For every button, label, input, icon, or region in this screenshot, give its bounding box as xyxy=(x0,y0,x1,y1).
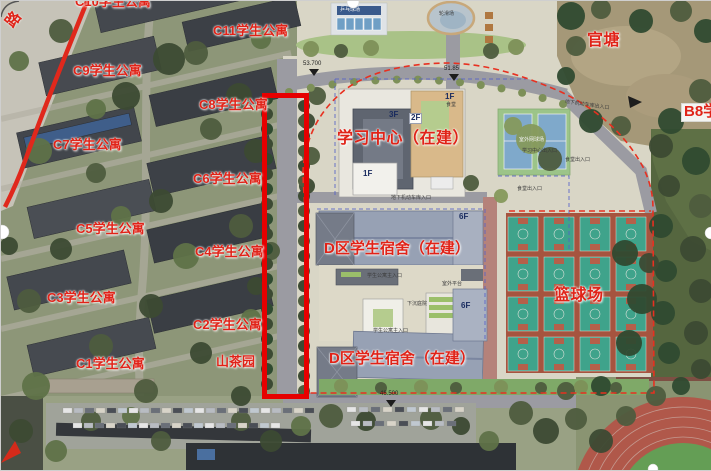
tree xyxy=(153,43,185,75)
tree xyxy=(616,406,636,426)
court-key xyxy=(554,258,564,264)
car xyxy=(260,423,269,428)
tree xyxy=(112,82,140,110)
car xyxy=(128,423,137,428)
tree xyxy=(579,109,603,133)
tree xyxy=(291,416,311,436)
planter-benches xyxy=(485,12,493,43)
car xyxy=(106,423,115,428)
car xyxy=(351,421,360,426)
tree xyxy=(649,134,673,158)
street-tree xyxy=(414,76,422,84)
tree xyxy=(414,380,428,394)
car xyxy=(228,408,237,413)
tree xyxy=(557,67,575,85)
car xyxy=(95,423,104,428)
car xyxy=(305,408,314,413)
car xyxy=(63,408,72,413)
car xyxy=(387,421,396,426)
car xyxy=(118,408,127,413)
tree xyxy=(173,243,199,269)
tree xyxy=(9,419,33,443)
tree xyxy=(50,238,72,260)
tree xyxy=(611,116,631,136)
court-key xyxy=(590,298,600,304)
car xyxy=(216,423,225,428)
car xyxy=(129,408,138,413)
skating-rink xyxy=(428,2,474,34)
car xyxy=(161,423,170,428)
blue-roof-structure xyxy=(197,449,215,460)
tree xyxy=(504,117,522,135)
car xyxy=(239,408,248,413)
tree xyxy=(89,334,113,358)
tree xyxy=(680,236,706,262)
car xyxy=(84,423,93,428)
tree xyxy=(557,2,585,30)
tree xyxy=(616,330,642,356)
car xyxy=(184,408,193,413)
street-tree xyxy=(307,84,315,92)
map-artwork xyxy=(1,1,711,470)
court-key xyxy=(554,364,564,370)
car xyxy=(162,408,171,413)
tree xyxy=(151,431,171,451)
court-key xyxy=(518,258,528,264)
tree xyxy=(149,189,173,213)
tree xyxy=(226,83,252,109)
tree xyxy=(682,147,710,175)
tree xyxy=(538,147,562,171)
tree xyxy=(17,289,41,313)
tree xyxy=(241,309,261,329)
tree xyxy=(566,36,586,56)
car xyxy=(249,423,258,428)
car xyxy=(73,423,82,428)
tree xyxy=(22,372,50,400)
car xyxy=(419,407,428,412)
tree xyxy=(494,189,508,203)
car xyxy=(272,408,281,413)
car xyxy=(383,407,392,412)
car xyxy=(173,408,182,413)
car xyxy=(431,407,440,412)
car xyxy=(411,421,420,426)
street-tree xyxy=(371,76,379,84)
court-key xyxy=(590,244,600,250)
court-key xyxy=(518,244,528,250)
car xyxy=(151,408,160,413)
tree xyxy=(574,380,588,394)
tree xyxy=(334,44,348,58)
campus-site-map: 路 C10学生公寓 C11学生公寓 C9学生公寓 C8学生公寓 C7学生公寓 C… xyxy=(0,0,711,471)
tree xyxy=(319,404,343,428)
street-tree xyxy=(477,81,485,89)
court-key xyxy=(518,284,528,290)
street-tree xyxy=(435,77,443,85)
car xyxy=(347,407,356,412)
tree xyxy=(260,430,282,452)
tree xyxy=(672,377,690,395)
car xyxy=(271,423,280,428)
car xyxy=(261,408,270,413)
car xyxy=(85,408,94,413)
court-key xyxy=(518,218,528,224)
street-tree xyxy=(559,100,567,108)
tree xyxy=(691,359,711,379)
tree xyxy=(646,386,666,406)
car xyxy=(283,408,292,413)
car xyxy=(74,408,83,413)
street-tree xyxy=(393,76,401,84)
car xyxy=(399,421,408,426)
court-key xyxy=(518,298,528,304)
court-key xyxy=(554,244,564,250)
car xyxy=(447,421,456,426)
tree xyxy=(9,51,29,71)
tree xyxy=(508,39,524,55)
car xyxy=(217,408,226,413)
court-key xyxy=(590,258,600,264)
car xyxy=(371,407,380,412)
car xyxy=(140,408,149,413)
tree xyxy=(303,41,319,57)
car xyxy=(172,423,181,428)
tree xyxy=(463,175,479,191)
court-key xyxy=(554,218,564,224)
tree xyxy=(483,43,499,59)
street-tree xyxy=(518,89,526,97)
tree xyxy=(565,408,587,430)
car xyxy=(238,423,247,428)
tree xyxy=(111,206,131,226)
car xyxy=(139,423,148,428)
court-key xyxy=(554,284,564,290)
court-key xyxy=(554,298,564,304)
dark-building-bottom xyxy=(186,443,516,470)
court-key xyxy=(518,338,528,344)
tree xyxy=(229,214,253,238)
tree xyxy=(589,429,613,453)
tree xyxy=(533,418,559,444)
tree xyxy=(134,379,158,403)
tree xyxy=(184,41,208,65)
learning-center-building xyxy=(339,89,465,197)
tree xyxy=(231,386,251,406)
car xyxy=(227,423,236,428)
car xyxy=(205,423,214,428)
car xyxy=(375,421,384,426)
court-key xyxy=(590,284,600,290)
court-key xyxy=(626,324,636,330)
car xyxy=(435,421,444,426)
court-key xyxy=(590,338,600,344)
court-key xyxy=(590,218,600,224)
tree xyxy=(670,1,692,22)
tree xyxy=(200,118,222,140)
tree xyxy=(494,380,508,394)
car xyxy=(294,408,303,413)
tree xyxy=(479,431,499,451)
tree xyxy=(334,379,348,393)
car xyxy=(107,408,116,413)
tree xyxy=(45,440,67,462)
car xyxy=(183,423,192,428)
car xyxy=(423,421,432,426)
tree xyxy=(190,342,212,364)
tree xyxy=(251,29,271,49)
tree xyxy=(639,253,659,273)
court-key xyxy=(554,338,564,344)
car xyxy=(359,407,368,412)
tree xyxy=(509,401,533,425)
car xyxy=(395,407,404,412)
tree xyxy=(658,108,684,134)
tree xyxy=(629,9,653,33)
car xyxy=(194,423,203,428)
tree xyxy=(557,382,575,400)
car xyxy=(96,408,105,413)
highlight-rectangle xyxy=(262,93,309,399)
car xyxy=(443,407,452,412)
tree xyxy=(658,342,680,364)
d-dorm-upper-building xyxy=(316,211,483,265)
tree xyxy=(627,284,657,314)
car xyxy=(250,408,259,413)
court-key xyxy=(626,364,636,370)
car xyxy=(150,423,159,428)
car xyxy=(117,423,126,428)
car xyxy=(363,421,372,426)
court-key xyxy=(518,324,528,330)
court-key xyxy=(590,324,600,330)
car xyxy=(195,408,204,413)
pingpong-area xyxy=(331,3,387,35)
tree xyxy=(86,163,106,183)
court-key xyxy=(554,324,564,330)
car xyxy=(206,408,215,413)
court-key xyxy=(518,364,528,370)
tree xyxy=(612,240,638,266)
tree xyxy=(363,40,379,56)
tree xyxy=(684,321,708,345)
tree xyxy=(139,294,163,318)
car xyxy=(455,407,464,412)
car xyxy=(407,407,416,412)
court-key xyxy=(590,364,600,370)
tree xyxy=(658,175,680,197)
street-tree xyxy=(539,94,547,102)
court-key xyxy=(626,218,636,224)
street-tree xyxy=(498,84,506,92)
tree xyxy=(86,99,106,119)
